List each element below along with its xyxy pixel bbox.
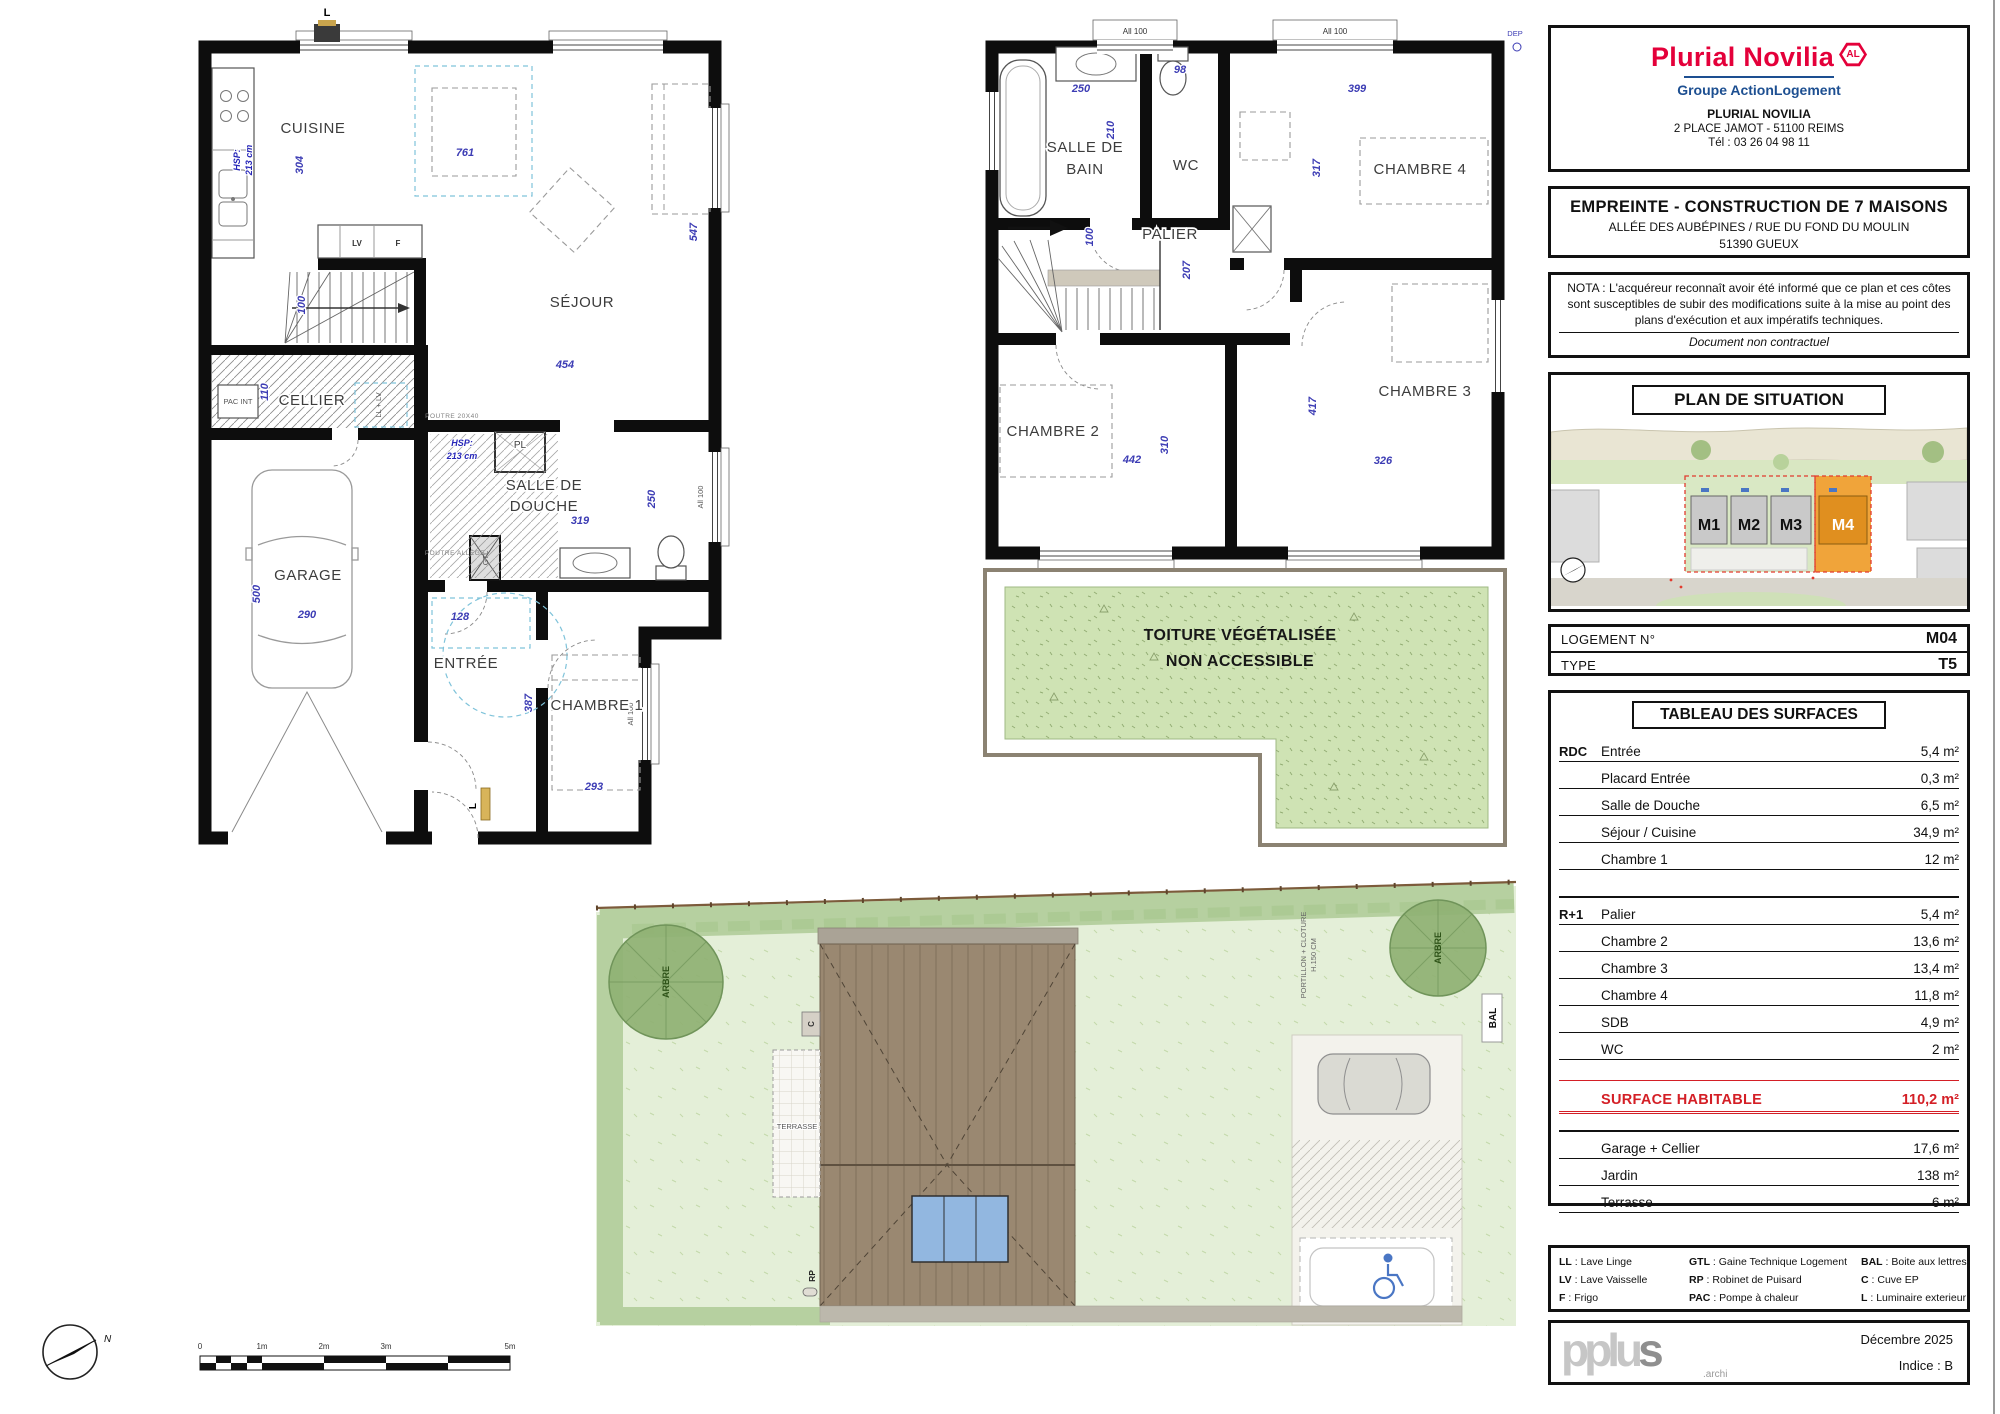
surfaces-title: TABLEAU DES SURFACES [1632,701,1886,729]
dim: 207 [1181,260,1193,280]
project-box: EMPREINTE - CONSTRUCTION DE 7 MAISONS AL… [1548,186,1970,258]
tree-label: ARBRE [661,966,671,998]
beam-note-1: POUTRE 20X40 [425,413,479,420]
house-m4: M4 [1832,517,1854,534]
beam-note-2: POUTRE ALLÈGE [425,548,485,557]
legend-box: LL : Lave Linge LV : Lave Vaisselle F : … [1548,1245,1970,1312]
surface-row: Terrasse6 m² [1559,1186,1959,1213]
mailbox-label: BAL [1488,1008,1499,1029]
scale-label: 3m [380,1342,391,1351]
company-phone: Tél : 03 26 04 98 11 [1551,137,1967,149]
project-address-1: ALLÉE DES AUBÉPINES / RUE DU FOND DU MOU… [1551,220,1967,234]
dim: 304 [294,156,306,174]
house-m1: M1 [1698,517,1720,534]
portillon-note-1: PORTILLON + CLOTURE [1299,912,1308,999]
terrasse: TERRASSE [773,1050,820,1197]
north-compass: N [43,1325,112,1379]
company-address: 2 PLACE JAMOT - 51100 REIMS [1551,123,1967,135]
project-title: EMPREINTE - CONSTRUCTION DE 7 MAISONS [1551,189,1967,217]
nota-footer: Document non contractuel [1551,335,1967,349]
plan-indice: Indice : B [1899,1358,1953,1373]
hsp-note: 213 cm [244,145,254,177]
entry-door-opening [432,831,478,845]
architect-logo: pplus [1561,1323,1659,1377]
garage-door-opening [228,831,386,845]
luminaire-label-bottom: L [468,803,479,809]
room-sdb-2: BAIN [1066,161,1103,178]
house-m2: M2 [1738,517,1760,534]
skylight [912,1196,1008,1262]
rp-label: RP [807,1270,817,1282]
portillon-note-2: H.150 CM [1309,938,1318,972]
roof-label-1: TOITURE VÉGÉTALISÉE [1144,625,1337,644]
roof-label-2: NON ACCESSIBLE [1166,653,1314,670]
logement-box: LOGEMENT N° M04 TYPE T5 [1548,624,1970,676]
dim: 399 [1348,83,1367,95]
room-sdb-1: SALLE DE [1047,139,1124,156]
fridge-label: F [396,239,401,248]
room-wc: WC [1173,157,1199,174]
surface-row: Jardin138 m² [1559,1159,1959,1186]
dim: 210 [1105,120,1117,140]
brand-group: Groupe ActionLogement [1551,82,1967,98]
surface-row: Chambre 313,4 m² [1559,952,1959,979]
r1-outer-walls [992,47,1498,553]
scale-label: 0 [198,1342,203,1351]
situation-box: PLAN DE SITUATION M1 M2 M3 M4 [1548,372,1970,612]
titleblock-box: pplus .archi Décembre 2025 Indice : B [1548,1320,1970,1385]
room-chambre3: CHAMBRE 3 [1379,383,1472,400]
scale-label: 5m [504,1342,515,1351]
type-label: TYPE [1561,658,1596,673]
r1-floorplan: All 100 All 100 All 100 All 100 DEP SALL… [985,20,1523,580]
dim: 128 [451,611,470,623]
dim: 442 [1122,454,1141,466]
surface-row: Chambre 112 m² [1559,843,1959,870]
dim: 387 [523,693,535,712]
nota-divider [1559,332,1959,333]
legend-item: LV : Lave Vaisselle [1559,1271,1689,1289]
dim: 500 [251,584,263,603]
north-label: N [104,1334,112,1345]
dim: 250 [646,489,658,509]
tree-label: ARBRE [1433,932,1443,964]
plan-sheet: PAC INT LL + LV LV F [0,0,2000,1414]
surfaces-box: TABLEAU DES SURFACES RDCEntrée5,4 m² Pla… [1548,690,1970,1206]
floorplan-canvas: PAC INT LL + LV LV F [0,0,1540,1414]
surface-row: R+1Palier5,4 m² [1559,898,1959,925]
legend-item: F : Frigo [1559,1289,1689,1307]
logement-value: M04 [1926,630,1957,648]
dim: 547 [688,222,700,241]
house-m3: M3 [1780,517,1802,534]
dim: 417 [1307,396,1319,416]
surface-row: WC2 m² [1559,1033,1959,1060]
hsp-note: HSP: [232,149,242,171]
surface-row: Garage + Cellier17,6 m² [1559,1132,1959,1159]
logo-divider [1684,76,1834,78]
dim: 454 [555,359,574,371]
dim: 250 [1071,83,1091,95]
surface-row: Chambre 411,8 m² [1559,979,1959,1006]
nota-line-3: d'exécution et aux impératifs techniques… [1667,313,1883,327]
terrasse-label: TERRASSE [777,1122,817,1131]
plan-date: Décembre 2025 [1861,1332,1954,1347]
driveway [1292,1035,1462,1325]
hsp-note: 213 cm [446,451,478,461]
legend-item: L : Luminaire exterieur [1861,1289,1967,1307]
room-pl: PL [514,440,527,451]
project-address-2: 51390 GUEUX [1551,237,1967,251]
nota-box: NOTA : L'acquéreur reconnaît avoir été i… [1548,272,1970,358]
room-chambre1: CHAMBRE 1 [551,697,644,714]
dim: 110 [259,382,271,400]
dim: 319 [571,515,590,527]
al-badge-icon: AL [1839,42,1867,67]
logement-label: LOGEMENT N° [1561,632,1655,647]
room-douche-2: DOUCHE [510,498,579,515]
company-name: PLURIAL NOVILIA [1551,107,1967,121]
washer-dryer-label: LL + LV [374,392,383,417]
room-chambre4: CHAMBRE 4 [1374,161,1467,178]
room-cuisine: CUISINE [280,120,345,137]
legend-item: BAL : Boite aux lettres [1861,1253,1967,1271]
scale-bar: 0 1m 2m 3m 5m [198,1342,516,1370]
group-separator [1559,870,1959,898]
dep-marker: DEP [1507,29,1522,38]
rp-tap [803,1288,817,1296]
room-sejour: SÉJOUR [550,294,614,311]
tree-1: ARBRE [609,925,723,1039]
surface-row: Séjour / Cuisine34,9 m² [1559,816,1959,843]
legend-item: C : Cuve EP [1861,1271,1967,1289]
surface-row: Chambre 213,6 m² [1559,925,1959,952]
exterior-light-top [314,24,340,42]
surface-row: SDB4,9 m² [1559,1006,1959,1033]
tree-2: ARBRE [1390,900,1486,996]
brand-name: Plurial Novilia [1651,42,1834,73]
exterior-light-bottom [481,788,490,820]
page-edge-line [1993,0,1995,1414]
scale-label: 1m [256,1342,267,1351]
window-label: All 100 [1323,27,1348,36]
garden-plan: ARBRE ARBRE C TERRASSE RP [596,882,1516,1326]
room-palier: PALIER [1142,226,1198,243]
dim: 100 [1084,227,1096,246]
luminaire-label-top: L [324,7,331,19]
room-douche-1: SALLE DE [506,477,583,494]
hsp-note: HSP: [451,438,473,448]
surface-row: Salle de Douche6,5 m² [1559,789,1959,816]
window-label: All 100 [1123,27,1148,36]
dim: 317 [1311,158,1323,177]
dim: 290 [297,609,317,621]
room-garage: GARAGE [274,567,342,584]
legend-item: RP : Robinet de Puisard [1689,1271,1861,1289]
architect-logo-suffix: .archi [1703,1369,1727,1380]
lv-label: LV [352,239,362,248]
annex-separator [1559,1114,1959,1132]
room-entree: ENTRÉE [434,655,498,672]
cuve-label: C [807,1021,816,1027]
situation-title: PLAN DE SITUATION [1632,385,1886,415]
room-cellier: CELLIER [279,392,346,409]
surface-row: RDCEntrée5,4 m² [1559,735,1959,762]
dim: 98 [1174,64,1187,76]
logo-box: Plurial Novilia AL Groupe ActionLogement… [1548,25,1970,172]
legend-item: PAC : Pompe à chaleur [1689,1289,1861,1307]
appliance-row: LV F [318,225,422,258]
car [1318,1054,1430,1114]
surface-total-row: SURFACE HABITABLE 110,2 m² [1559,1080,1959,1114]
dim: 293 [584,781,603,793]
road-strip [820,1306,1462,1322]
pac-label: PAC INT [223,397,252,406]
legend-item: GTL : Gaine Technique Logement [1689,1253,1861,1271]
house-roof [818,928,1078,1306]
surface-row: Placard Entrée0,3 m² [1559,762,1959,789]
room-chambre2: CHAMBRE 2 [1007,423,1100,440]
type-value: T5 [1938,656,1957,674]
legend-item: LL : Lave Linge [1559,1253,1689,1271]
dim: 310 [1159,435,1171,454]
green-roof-block: TOITURE VÉGÉTALISÉE NON ACCESSIBLE [985,570,1505,845]
scale-label: 2m [318,1342,329,1351]
window-sill-label: All 100 [696,486,705,509]
dim: 100 [296,295,308,314]
dim: 761 [456,147,474,159]
situation-map: M1 M2 M3 M4 [1551,420,1967,606]
dim: 326 [1374,455,1393,467]
rdc-floorplan: PAC INT LL + LV LV F [205,7,729,845]
